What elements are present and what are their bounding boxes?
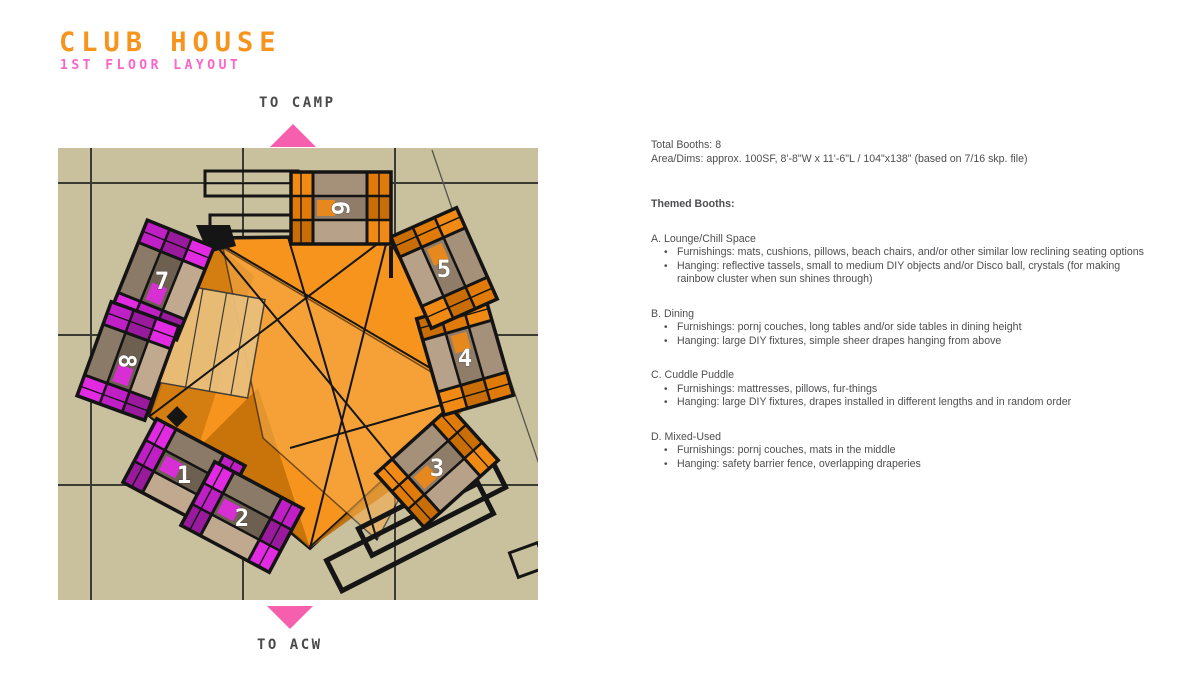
arrow-up-icon <box>270 124 316 147</box>
floor-plan: 12345678 <box>58 148 538 600</box>
booth-6: 6 <box>291 172 391 244</box>
booth-number-4: 4 <box>458 344 472 372</box>
themed-booth-sections: A. Lounge/Chill SpaceFurnishings: mats, … <box>651 233 1151 472</box>
floor-plan-svg: 12345678 <box>58 148 538 600</box>
area-dims: Area/Dims: approx. 100SF, 8'-8"W x 11'-6… <box>651 153 1151 167</box>
note-bullet: Furnishings: mats, cushions, pillows, be… <box>658 246 1151 260</box>
booth-number-1: 1 <box>177 461 191 489</box>
note-section-label: A. Lounge/Chill Space <box>651 233 1151 247</box>
note-bullet: Furnishings: mattresses, pillows, fur-th… <box>658 383 1151 397</box>
arrow-down-icon <box>267 606 313 629</box>
note-bullet: Hanging: reflective tassels, small to me… <box>658 260 1151 287</box>
direction-label-acw: TO ACW <box>257 637 323 653</box>
booth-number-2: 2 <box>235 504 249 532</box>
booth-number-5: 5 <box>437 255 451 283</box>
booth-number-3: 3 <box>430 454 444 482</box>
slide: CLUB HOUSE 1ST FLOOR LAYOUT TO CAMP <box>0 0 1200 675</box>
booth-number-8: 8 <box>113 354 141 368</box>
direction-label-camp: TO CAMP <box>259 95 336 111</box>
themed-booths-heading: Themed Booths: <box>651 198 1151 212</box>
note-bullet: Furnishings: pornj couches, mats in the … <box>658 444 1151 458</box>
note-section-label: D. Mixed-Used <box>651 431 1151 445</box>
booth-number-7: 7 <box>155 267 169 295</box>
note-bullet: Hanging: safety barrier fence, overlappi… <box>658 458 1151 472</box>
note-section-label: C. Cuddle Puddle <box>651 369 1151 383</box>
total-booths: Total Booths: 8 <box>651 139 1151 153</box>
page-title: CLUB HOUSE <box>59 27 282 58</box>
note-section: B. DiningFurnishings: pornj couches, lon… <box>651 308 1151 349</box>
note-bullet: Hanging: large DIY fixtures, drapes inst… <box>658 396 1151 410</box>
note-section: C. Cuddle PuddleFurnishings: mattresses,… <box>651 369 1151 410</box>
note-section: D. Mixed-UsedFurnishings: pornj couches,… <box>651 431 1151 472</box>
notes-panel: Total Booths: 8 Area/Dims: approx. 100SF… <box>651 139 1151 471</box>
note-section-label: B. Dining <box>651 308 1151 322</box>
note-bullet: Furnishings: pornj couches, long tables … <box>658 321 1151 335</box>
booth-number-6: 6 <box>326 201 354 215</box>
note-bullet: Hanging: large DIY fixtures, simple shee… <box>658 335 1151 349</box>
page-subtitle: 1ST FLOOR LAYOUT <box>60 58 241 73</box>
note-section: A. Lounge/Chill SpaceFurnishings: mats, … <box>651 233 1151 287</box>
